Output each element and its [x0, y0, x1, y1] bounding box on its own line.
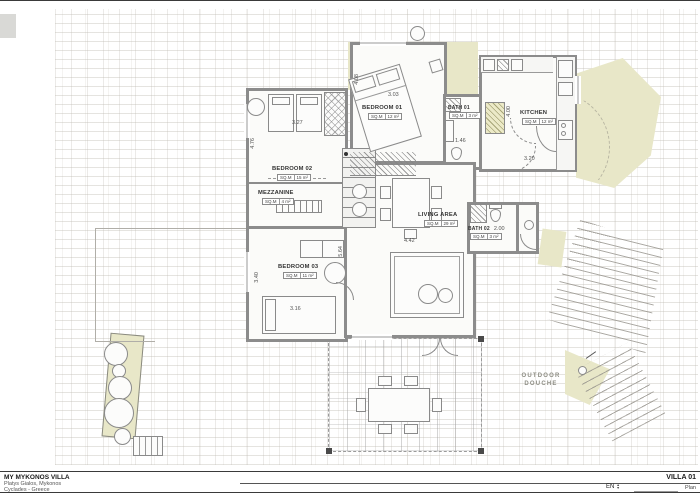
language-value: EN [606, 484, 614, 490]
sheet-title: VILLA 01 [560, 474, 696, 481]
area-bedroom02: SQ.M15 m² [277, 174, 311, 181]
round-table [247, 98, 265, 116]
area-value: 11 m² [303, 273, 314, 278]
dim-living-height: 5.64 [338, 246, 344, 257]
terrain-right-mid [538, 229, 567, 268]
window [352, 334, 392, 340]
dim-bedroom01-width: 3.03 [388, 92, 399, 98]
sink [558, 82, 573, 96]
titleblock-left: MY MYKONOS VILLA Platys Gialos, Mykonos … [4, 474, 244, 493]
window [360, 40, 406, 46]
label-bedroom03: BEDROOM 03 [278, 264, 318, 270]
outdoor-chair [378, 424, 392, 434]
area-living: SQ.M29 m² [424, 220, 458, 227]
dim-living-width: 4.42 [404, 238, 415, 244]
area-mezzanine: SQ.M4 m² [262, 198, 294, 205]
dim-bath01-width: 1.46 [455, 138, 466, 144]
dim-bath02-width: 2.00 [494, 226, 505, 232]
round-rug [324, 262, 346, 284]
corner-mark [0, 14, 16, 38]
kitchen-appliance [483, 59, 495, 71]
pillow [300, 97, 318, 105]
outdoor-chair [404, 376, 418, 386]
tree-symbol [410, 26, 425, 41]
sqm-label: SQ.M [473, 234, 488, 239]
chair [431, 186, 442, 199]
outdoor-chair [356, 398, 366, 412]
terrace-wall-line [95, 341, 155, 342]
label-kitchen: KITCHEN [520, 110, 547, 116]
language-select[interactable]: EN ▲▼ [606, 484, 620, 490]
area-value: 3 m² [469, 113, 478, 118]
pergola-post [478, 448, 484, 454]
round-side-table [352, 202, 367, 217]
sqm-label: SQ.M [525, 119, 540, 124]
area-value: 15 m² [297, 175, 309, 180]
dim-bedroom02-height: 4.76 [250, 138, 256, 149]
pergola-post [478, 336, 484, 342]
area-value: 12 m² [542, 119, 554, 124]
area-bedroom01: SQ.M12 m² [368, 113, 402, 120]
label-bath01: BATH 01 [448, 105, 470, 111]
sqm-label: SQ.M [286, 273, 301, 278]
hob-burner [561, 123, 566, 128]
area-bath01: SQ.M3 m² [449, 112, 481, 119]
outdoor-chair [378, 376, 392, 386]
titleblock-rule-bottom [0, 492, 700, 493]
wall-divider [248, 182, 346, 184]
outdoor-douche-line1: OUTDOOR [506, 372, 576, 380]
pouf [438, 288, 453, 303]
area-bath02: SQ.M3 m² [470, 233, 502, 240]
area-bedroom03: SQ.M11 m² [283, 272, 317, 279]
outdoor-chair [404, 424, 418, 434]
terrace-wall-line [95, 228, 247, 229]
bush [108, 376, 132, 400]
stair-marker [344, 152, 348, 156]
dim-kitchen-height: 4.00 [506, 106, 512, 117]
pillow [265, 299, 276, 331]
shower-tray [470, 204, 487, 223]
dim-kitchen-width: 3.20 [524, 156, 535, 162]
drawing-sheet: BEDROOM 01 SQ.M12 m² BEDROOM 02 SQ.M15 m… [0, 0, 700, 500]
outdoor-douche-line2: DOUCHE [506, 380, 576, 388]
chair [380, 208, 391, 221]
titleblock-rule-mid [240, 483, 700, 484]
titleblock-rule-top [0, 471, 700, 472]
wall-divider [516, 204, 519, 252]
bush [114, 428, 131, 445]
label-bath02-row: BATH 02 2.00 [468, 226, 505, 232]
area-value: 29 m² [444, 221, 456, 226]
bench-divider [322, 240, 323, 258]
kitchen-island [485, 102, 505, 134]
garden-steps-small [133, 436, 163, 456]
area-kitchen: SQ.M12 m² [522, 118, 556, 125]
select-spinner-icon: ▲▼ [616, 484, 619, 490]
wardrobe [324, 92, 346, 136]
kitchen-appliance [511, 59, 523, 71]
terrace-wall-line [95, 228, 96, 342]
bath-counter [445, 120, 454, 142]
fridge [558, 60, 573, 78]
project-name: MY MYKONOS VILLA [4, 474, 244, 481]
area-value: 12 m² [388, 114, 400, 119]
hob-burner [561, 131, 566, 136]
window [244, 252, 250, 292]
label-living: LIVING AREA [418, 212, 457, 218]
area-value: 3 m² [490, 234, 499, 239]
outdoor-douche-label: OUTDOOR DOUCHE [506, 372, 576, 388]
bush [104, 398, 134, 428]
outdoor-chair [432, 398, 442, 412]
bush [104, 342, 128, 366]
window [575, 76, 581, 104]
label-bedroom02: BEDROOM 02 [272, 166, 312, 172]
wall-divider [248, 226, 346, 229]
sqm-label: SQ.M [452, 113, 467, 118]
stair-void-hatch [350, 152, 416, 176]
area-value: 4 m² [282, 199, 291, 204]
label-bath02: BATH 02 [468, 226, 490, 232]
kitchen-appliance [497, 59, 509, 71]
label-mezzanine: MEZZANINE [258, 190, 294, 196]
pergola-post [326, 448, 332, 454]
sqm-label: SQ.M [265, 199, 280, 204]
label-bedroom01: BEDROOM 01 [362, 105, 402, 111]
sheet-top-border [0, 0, 700, 1]
pouf [418, 284, 438, 304]
outdoor-dining-table [368, 388, 430, 422]
pillow [272, 97, 290, 105]
dim-bedroom03-height: 3.40 [254, 272, 260, 283]
sqm-label: SQ.M [280, 175, 295, 180]
dim-bedroom03-width: 3.16 [290, 306, 301, 312]
chair [380, 186, 391, 199]
shower-drain [524, 220, 534, 230]
dim-bedroom01-height: 4.08 [354, 74, 360, 85]
shower-head-symbol [578, 366, 587, 375]
round-side-table [352, 184, 367, 199]
dim-bedroom02-width: 3.27 [292, 120, 303, 126]
sqm-label: SQ.M [371, 114, 386, 119]
sqm-label: SQ.M [427, 221, 442, 226]
